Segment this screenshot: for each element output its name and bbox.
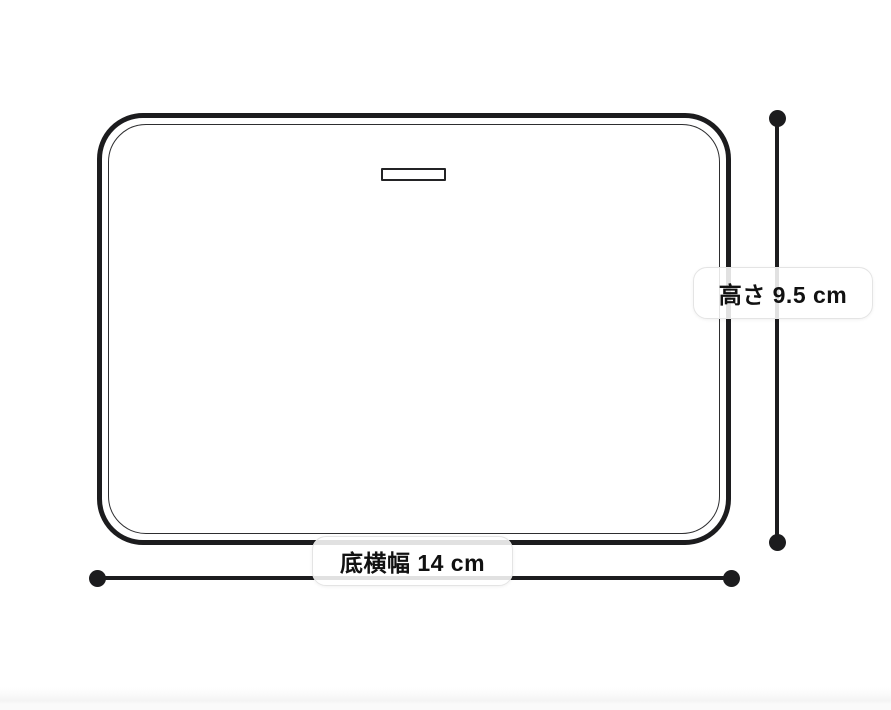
width-label: 底横幅 14 cm xyxy=(312,536,513,586)
dimension-diagram: 高さ 9.5 cm 底横幅 14 cm xyxy=(0,0,891,710)
height-dimension-line xyxy=(775,118,779,542)
pouch-inner-seam-line xyxy=(108,124,720,534)
dimension-endpoint-dot xyxy=(89,570,106,587)
height-label: 高さ 9.5 cm xyxy=(693,267,873,319)
dimension-endpoint-dot xyxy=(723,570,740,587)
page-bottom-section-edge xyxy=(0,687,891,710)
pouch-top-slot xyxy=(381,168,446,181)
dimension-endpoint-dot xyxy=(769,110,786,127)
dimension-endpoint-dot xyxy=(769,534,786,551)
